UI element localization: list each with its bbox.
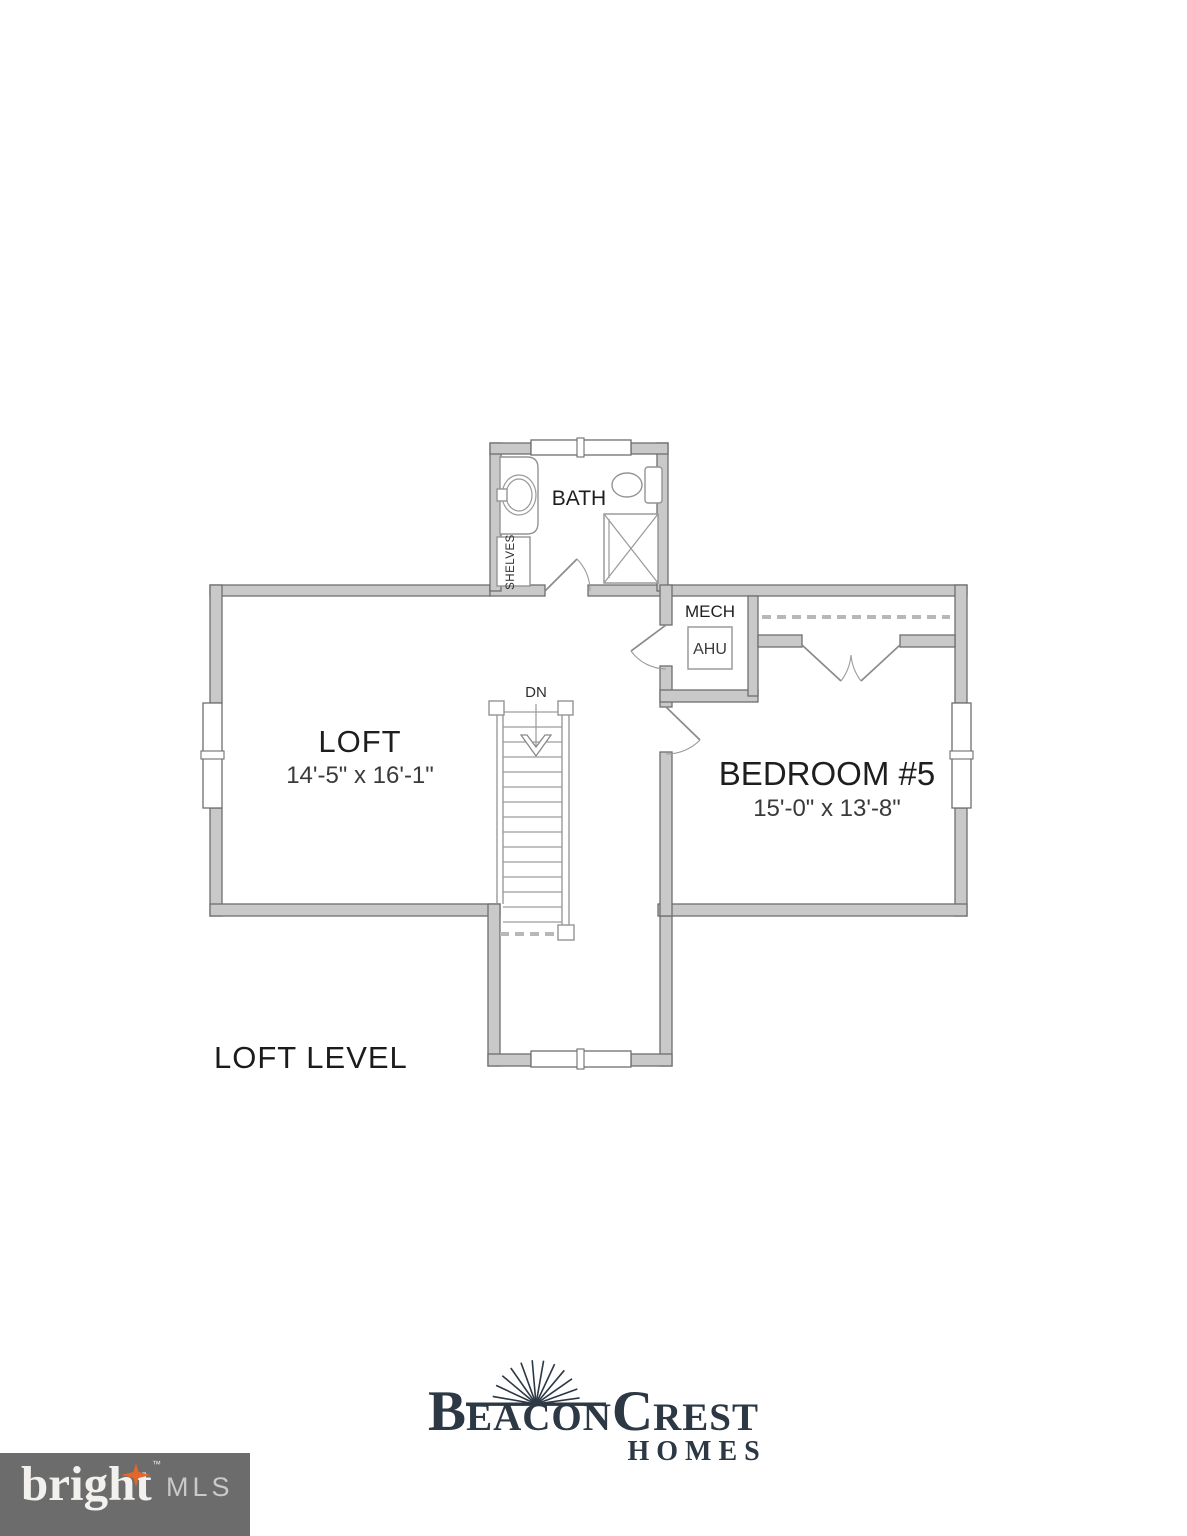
bedroom5-room-label: BEDROOM #5 (719, 755, 935, 792)
bath-room-label: BATH (552, 487, 606, 510)
floor-plan-page: { "plan": { "level_title": "LOFT LEVEL",… (0, 0, 1187, 1536)
ahu-label: AHU (693, 641, 727, 658)
toilet-tank (645, 467, 662, 503)
bath-faucet (497, 489, 507, 501)
stairs: DN (489, 684, 574, 940)
loft-room-label: LOFT (318, 724, 401, 759)
bath-fixtures: SHELVES (497, 457, 662, 590)
builder-name-part: REST (653, 1396, 759, 1439)
bath-door (545, 559, 577, 591)
mls-trademark: ™ (152, 1459, 161, 1469)
shelves-label: SHELVES (505, 534, 517, 590)
newel-post (489, 701, 504, 715)
bedroom5-room-dims: 15'-0" x 13'-8" (753, 795, 901, 822)
mls-suffix-label: MLS (166, 1472, 234, 1503)
builder-name-part: C (612, 1380, 653, 1443)
builder-name-part: B (428, 1380, 466, 1443)
mech-door (631, 625, 666, 651)
loft-room-dims: 14'-5" x 16'-1" (286, 762, 434, 789)
floor-plan: SHELVES MECH AHU DN (0, 0, 1187, 1536)
builder-homes-label: HOMES (628, 1438, 767, 1466)
closet-bifold-left (802, 645, 841, 681)
level-title: LOFT LEVEL (214, 1040, 408, 1075)
mls-star-icon (121, 1463, 151, 1487)
stair-direction-label: DN (525, 684, 547, 701)
mls-badge: bright ™ MLS (0, 1453, 250, 1536)
newel-post (558, 925, 574, 940)
closet-bifold-right (861, 645, 900, 681)
builder-name-part: EACON (466, 1396, 612, 1439)
toilet-bowl (612, 473, 642, 497)
windows (201, 438, 973, 1069)
builder-name: BEACONCREST (0, 1383, 1187, 1440)
bedroom-door (666, 707, 700, 740)
newel-post (558, 701, 573, 715)
mech-label: MECH (685, 602, 735, 621)
